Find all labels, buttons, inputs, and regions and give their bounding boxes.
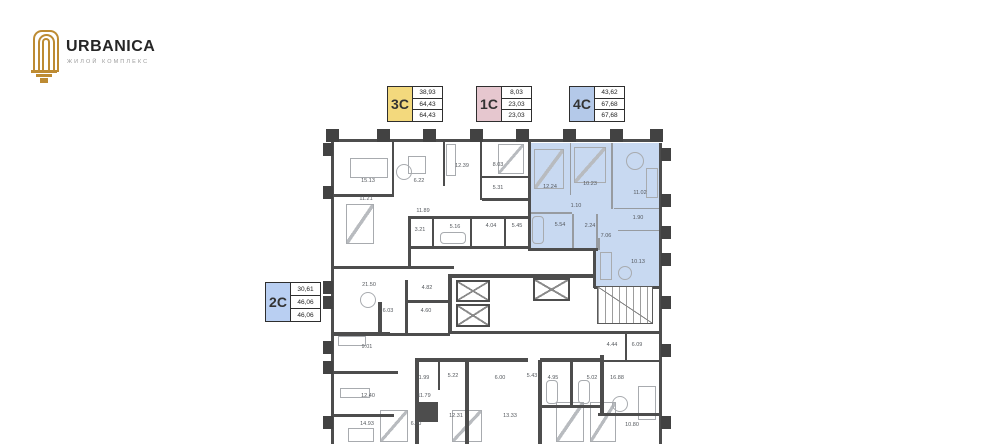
wall bbox=[625, 334, 627, 360]
column-stub bbox=[650, 129, 663, 142]
room-area-label: 5.54 bbox=[555, 222, 566, 228]
column-stub bbox=[661, 194, 671, 207]
wall bbox=[334, 266, 454, 269]
wall bbox=[482, 176, 529, 178]
column-stub bbox=[323, 143, 333, 156]
room-area-label: 6.22 bbox=[414, 178, 425, 184]
column-stub bbox=[323, 416, 333, 429]
room-area-label: 5.16 bbox=[450, 224, 461, 230]
wall bbox=[438, 360, 440, 390]
room-area-label: 11.79 bbox=[417, 393, 430, 399]
column-stub bbox=[516, 129, 529, 142]
wall bbox=[332, 371, 398, 374]
room-area-label: 12.24 bbox=[543, 184, 557, 190]
column-stub bbox=[661, 344, 671, 357]
room-area-label: 10.13 bbox=[631, 259, 645, 265]
room-area-label: 6.00 bbox=[495, 375, 506, 381]
wall bbox=[408, 216, 411, 268]
wall bbox=[528, 248, 598, 251]
room-area-label: 4.44 bbox=[607, 342, 618, 348]
furniture-tub bbox=[532, 216, 544, 244]
wall bbox=[378, 333, 450, 336]
column-stub bbox=[661, 296, 671, 309]
room-area-label: 11.89 bbox=[416, 208, 429, 214]
furniture-tub bbox=[440, 232, 466, 244]
wall bbox=[408, 246, 529, 249]
wall bbox=[482, 198, 529, 201]
wall bbox=[538, 360, 542, 444]
room-area-label: 12.40 bbox=[361, 393, 375, 399]
partition-wall bbox=[614, 208, 660, 209]
furniture-circle bbox=[618, 266, 632, 280]
room-area-label: 15.13 bbox=[361, 178, 375, 184]
furniture-rect bbox=[350, 158, 388, 178]
wall bbox=[332, 414, 394, 417]
room-area-label: 4.82 bbox=[422, 285, 433, 291]
room-area-label: 12.31 bbox=[449, 413, 463, 419]
room-area-label: 1.99 bbox=[419, 375, 430, 381]
furniture-tub bbox=[578, 380, 590, 404]
column-stub bbox=[423, 129, 436, 142]
wall bbox=[504, 218, 506, 248]
room-area-label: 5.43 bbox=[527, 373, 538, 379]
partition-wall bbox=[530, 212, 572, 214]
furniture-bed bbox=[346, 204, 374, 244]
wall bbox=[598, 413, 662, 416]
wall bbox=[465, 360, 469, 444]
room-area-label: 11.21 bbox=[359, 196, 372, 202]
furniture-rect bbox=[646, 168, 658, 198]
room-area-label: 9.01 bbox=[362, 344, 373, 350]
room-area-label: 5.31 bbox=[493, 185, 504, 191]
column-stub bbox=[323, 186, 333, 199]
column-stub bbox=[563, 129, 576, 142]
room-area-label: 10.80 bbox=[625, 422, 639, 428]
room-area-label: 6.09 bbox=[632, 342, 643, 348]
column-stub bbox=[323, 341, 333, 354]
wall bbox=[418, 358, 528, 362]
floor-plan: 15.1311.216.2212.398.035.3111.893.215.16… bbox=[0, 0, 1000, 444]
wall bbox=[443, 142, 445, 186]
room-area-label: 1.10 bbox=[571, 203, 582, 209]
wall bbox=[659, 143, 662, 444]
room-area-label: 6.03 bbox=[383, 308, 394, 314]
room-area-label: 3.21 bbox=[415, 227, 426, 233]
wall bbox=[470, 218, 472, 248]
wall bbox=[405, 300, 450, 303]
furniture-rect bbox=[600, 252, 612, 280]
wall bbox=[450, 274, 596, 278]
room-area-label: 7.06 bbox=[601, 233, 612, 239]
partition-wall bbox=[598, 238, 600, 250]
wall bbox=[405, 280, 408, 335]
furniture-circle bbox=[360, 292, 376, 308]
furniture-bed bbox=[498, 144, 524, 174]
room-area-label: 4.60 bbox=[421, 308, 432, 314]
column-stub bbox=[326, 129, 339, 142]
wall bbox=[448, 331, 662, 334]
furniture-circle bbox=[626, 152, 644, 170]
room-area-label: 13.33 bbox=[503, 413, 517, 419]
partition-wall bbox=[611, 143, 613, 209]
wall bbox=[408, 216, 529, 219]
wall bbox=[416, 402, 438, 422]
column-stub bbox=[377, 129, 390, 142]
room-area-label: 21.50 bbox=[362, 282, 376, 288]
partition-wall bbox=[570, 143, 571, 195]
partition-wall bbox=[572, 214, 574, 250]
column-stub bbox=[661, 416, 671, 429]
room-area-label: 8.03 bbox=[493, 162, 504, 168]
elevator-shaft bbox=[456, 304, 490, 327]
furniture-bed bbox=[556, 402, 584, 442]
column-stub bbox=[661, 148, 671, 161]
column-stub bbox=[661, 253, 671, 266]
furniture-rect bbox=[408, 156, 426, 174]
wall bbox=[432, 218, 434, 248]
wall bbox=[528, 141, 531, 251]
furniture-rect bbox=[348, 428, 374, 442]
wall bbox=[593, 250, 596, 288]
room-area-label: 12.39 bbox=[455, 163, 469, 169]
column-stub bbox=[661, 226, 671, 239]
furniture-rect bbox=[446, 144, 456, 176]
wall bbox=[570, 360, 573, 406]
stairwell bbox=[597, 286, 653, 324]
elevator-shaft bbox=[456, 280, 490, 302]
wall bbox=[392, 142, 394, 196]
partition-wall bbox=[618, 230, 660, 231]
room-area-label: 14.93 bbox=[360, 421, 374, 427]
column-stub bbox=[610, 129, 623, 142]
room-area-label: 4.95 bbox=[548, 375, 559, 381]
wall bbox=[540, 405, 602, 408]
room-area-label: 5.45 bbox=[512, 223, 523, 229]
elevator-shaft bbox=[533, 278, 570, 301]
furniture-bed bbox=[534, 149, 564, 189]
wall bbox=[415, 358, 419, 444]
room-area-label: 5.22 bbox=[448, 373, 459, 379]
column-stub bbox=[323, 296, 333, 309]
furniture-bed bbox=[574, 147, 606, 183]
room-area-label: 16.88 bbox=[610, 375, 624, 381]
room-area-label: 6.00 bbox=[411, 421, 422, 427]
room-area-label: 5.02 bbox=[587, 375, 598, 381]
furniture-circle bbox=[612, 396, 628, 412]
furniture-tub bbox=[546, 380, 558, 404]
column-stub bbox=[323, 361, 333, 374]
room-area-label: 4.04 bbox=[486, 223, 497, 229]
wall bbox=[598, 360, 662, 362]
room-area-label: 10.23 bbox=[583, 181, 597, 187]
wall bbox=[480, 142, 482, 200]
room-area-label: 1.90 bbox=[633, 215, 644, 221]
column-stub bbox=[323, 281, 333, 294]
room-area-label: 2.24 bbox=[585, 223, 596, 229]
column-stub bbox=[470, 129, 483, 142]
wall bbox=[448, 274, 452, 334]
wall bbox=[378, 302, 382, 336]
room-area-label: 11.02 bbox=[633, 190, 646, 196]
